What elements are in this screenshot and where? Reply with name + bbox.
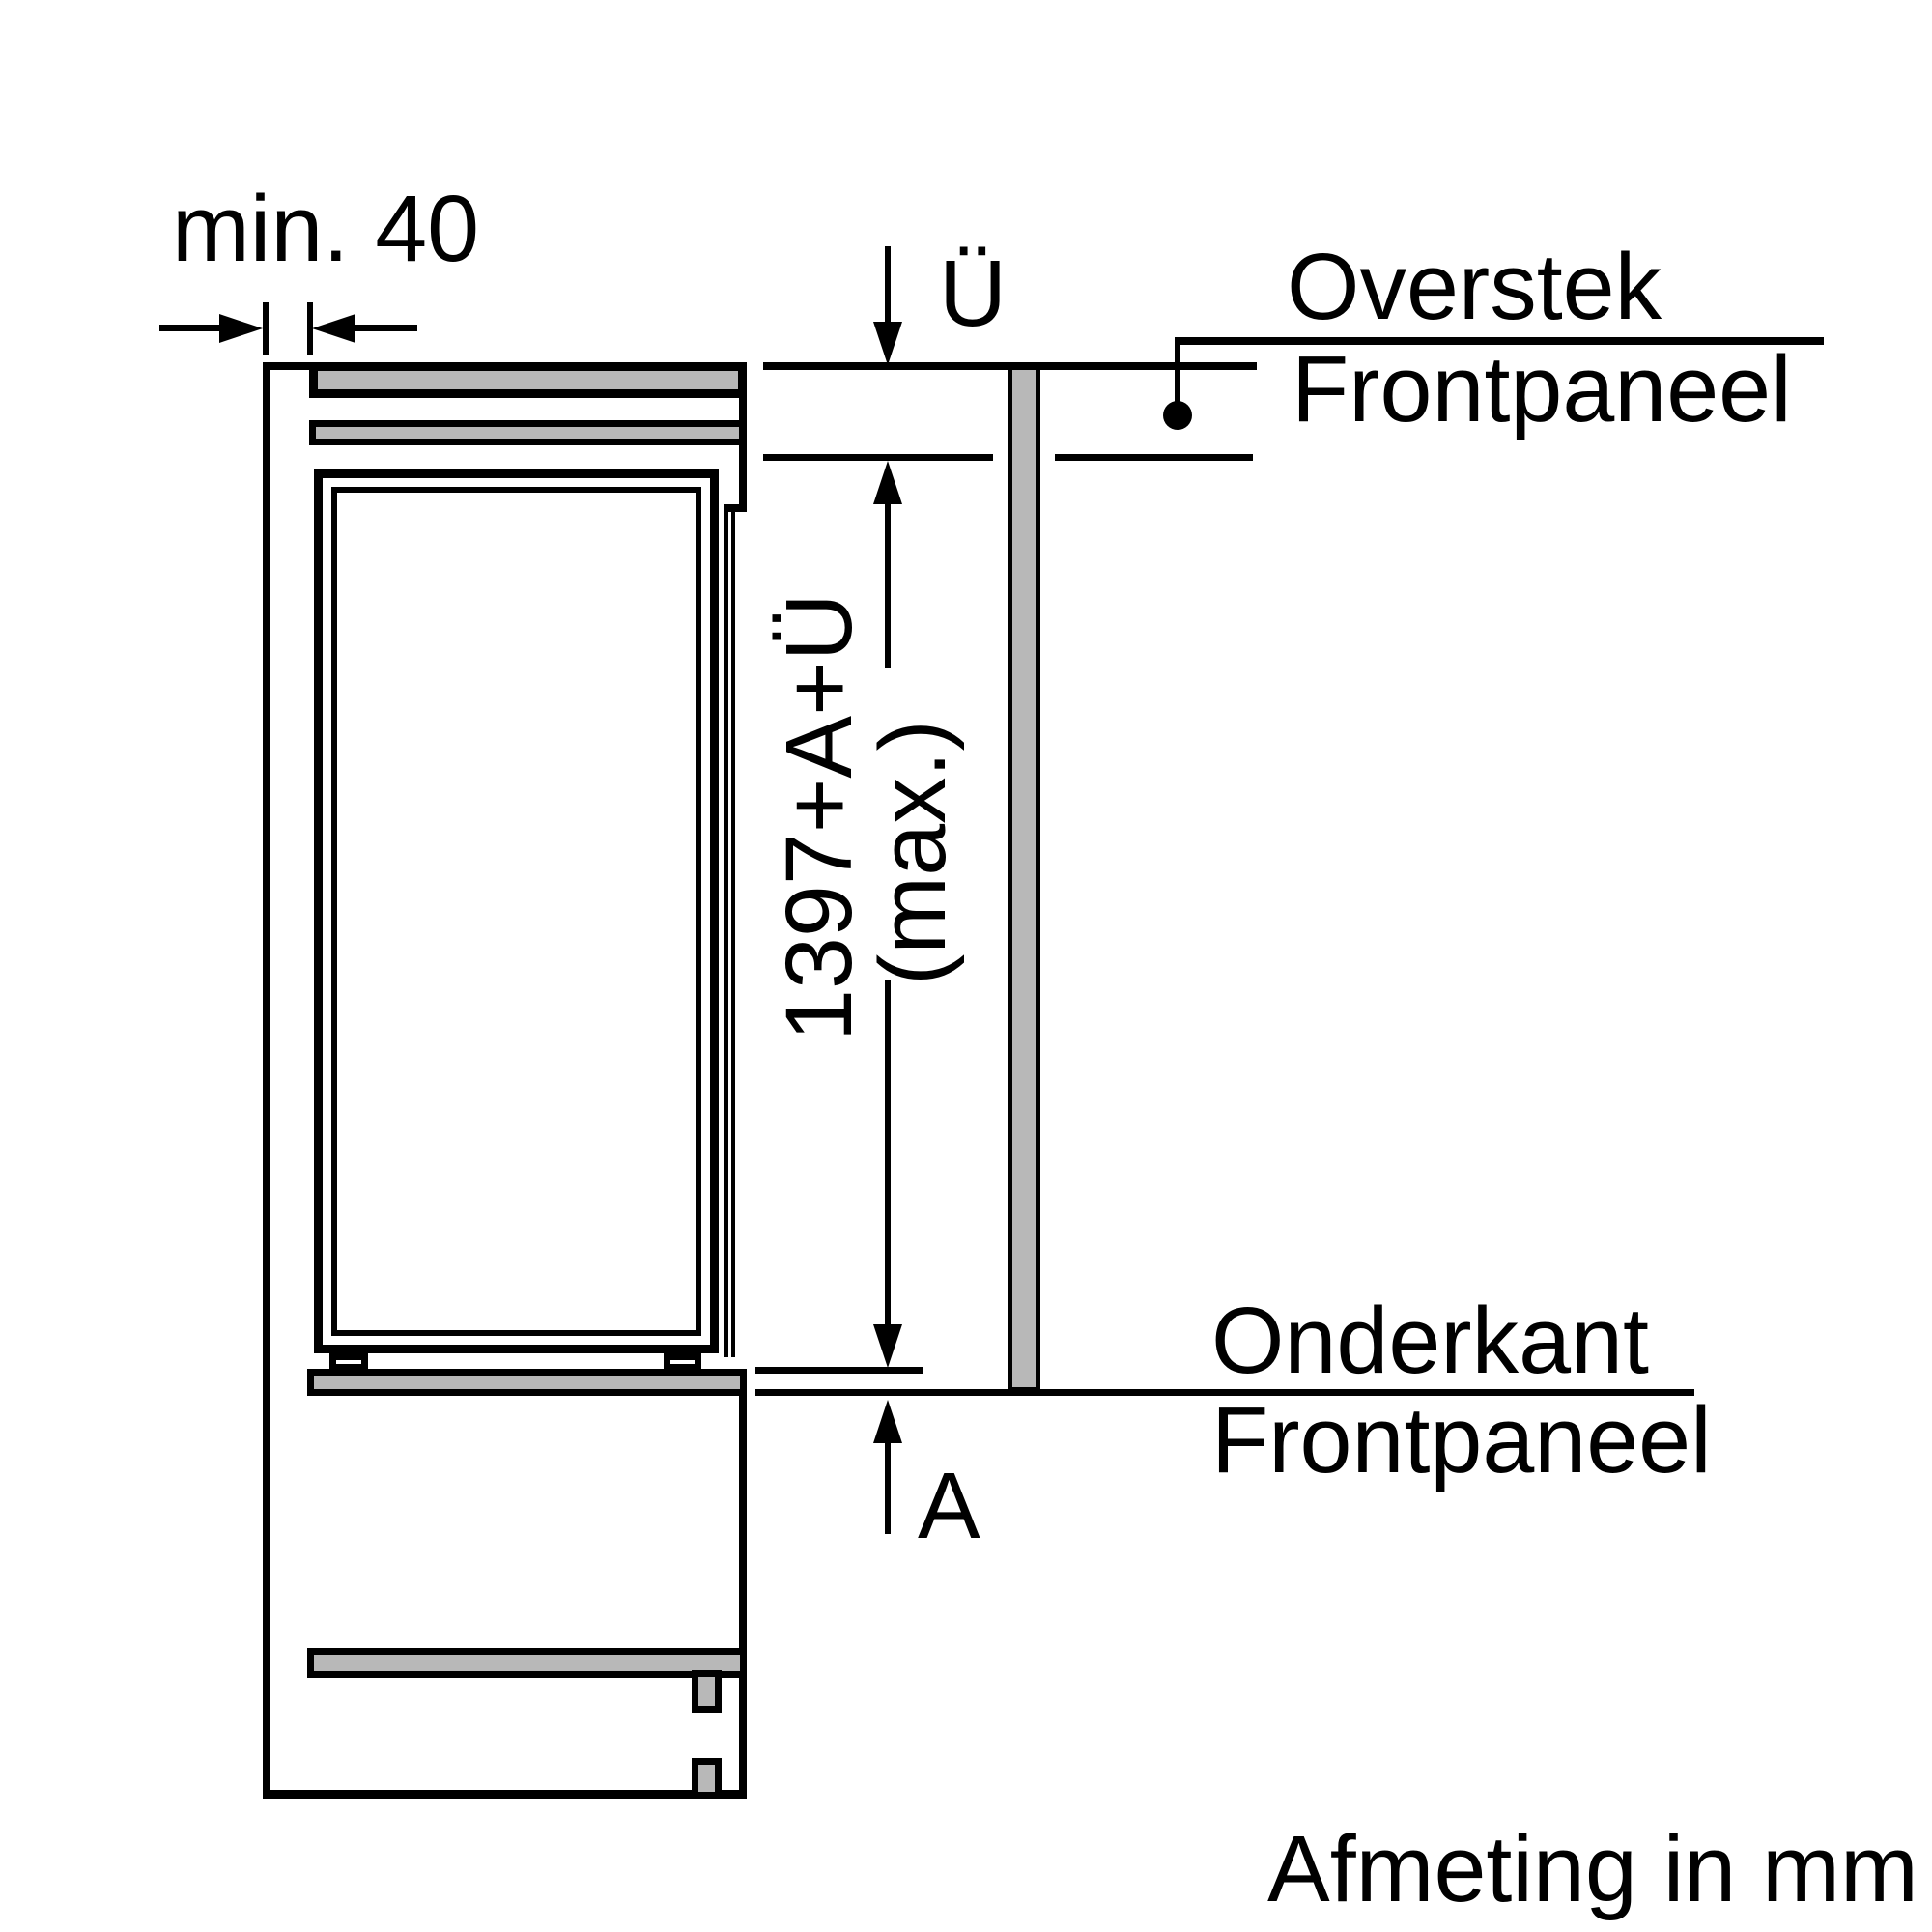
appliance-top-strip [314, 367, 743, 394]
height-dim-top-arrow-head [873, 461, 902, 504]
bottom-gap-arrow-shaft [885, 1437, 891, 1534]
bottom-gap-arrow-head [873, 1400, 902, 1443]
appliance-right-edge-top [739, 362, 747, 512]
onderkant-label: Onderkant [1211, 1288, 1649, 1393]
door-top-reference-line-right [1055, 454, 1253, 461]
overhang-symbol-label: Ü [939, 241, 1007, 346]
frontpaneel-bottom-label: Frontpaneel [1211, 1387, 1712, 1492]
installation-diagram: min. 40 Ü Overstek Frontpaneel 1397+A+Ü … [0, 0, 1932, 1932]
appliance-right-step [724, 504, 747, 512]
height-dim-bottom-shaft [885, 980, 891, 1329]
min40-arrow-left-shaft [159, 325, 221, 331]
appliance-second-strip [313, 424, 744, 442]
plinth-strip [311, 1373, 744, 1393]
door-front-strip-inner [724, 512, 728, 1357]
min40-arrow-right-shaft [355, 325, 417, 331]
height-dimension-max-label: (max.) [860, 720, 965, 985]
cabinet-bottom-line [263, 1790, 747, 1799]
min-gap-label: min. 40 [172, 176, 479, 281]
height-dim-bottom-arrow-head [873, 1324, 902, 1368]
appliance-bottom-reference-line [755, 1367, 923, 1374]
overstek-label: Overstek [1287, 234, 1662, 339]
cabinet-wall-left [263, 362, 270, 1799]
diagram-drawing: min. 40 Ü Overstek Frontpaneel 1397+A+Ü … [0, 0, 1932, 1932]
overhang-arrow-head [873, 322, 902, 365]
lower-cabinet-right-wall [739, 1396, 747, 1799]
appliance-foot-left [333, 1357, 365, 1368]
door-top-reference-line-left [763, 454, 993, 461]
frontpaneel-top-label: Frontpaneel [1292, 336, 1792, 441]
min40-arrow-left-head [219, 314, 263, 343]
panel-top-reference-line [763, 362, 1257, 370]
height-dim-top-shaft [885, 500, 891, 668]
appliance-door-outer [319, 474, 715, 1350]
height-dimension-label: 1397+A+Ü [766, 593, 871, 1041]
footer-units-label: Afmeting in mm [1267, 1816, 1918, 1921]
lower-bracket-lower [696, 1762, 719, 1796]
min40-arrow-right-head [312, 314, 355, 343]
lower-shelf-strip [311, 1652, 744, 1675]
cabinet-top-stub [270, 362, 314, 370]
lower-bracket-upper [696, 1674, 719, 1710]
min40-tick-left [263, 302, 269, 355]
appliance-foot-right [668, 1357, 698, 1368]
door-front-strip-outer [731, 512, 735, 1357]
overhang-arrow-shaft [885, 246, 891, 328]
overstek-leader-dot [1163, 401, 1192, 430]
bottom-gap-symbol-label: A [918, 1453, 980, 1558]
front-panel-bar [1010, 367, 1038, 1390]
